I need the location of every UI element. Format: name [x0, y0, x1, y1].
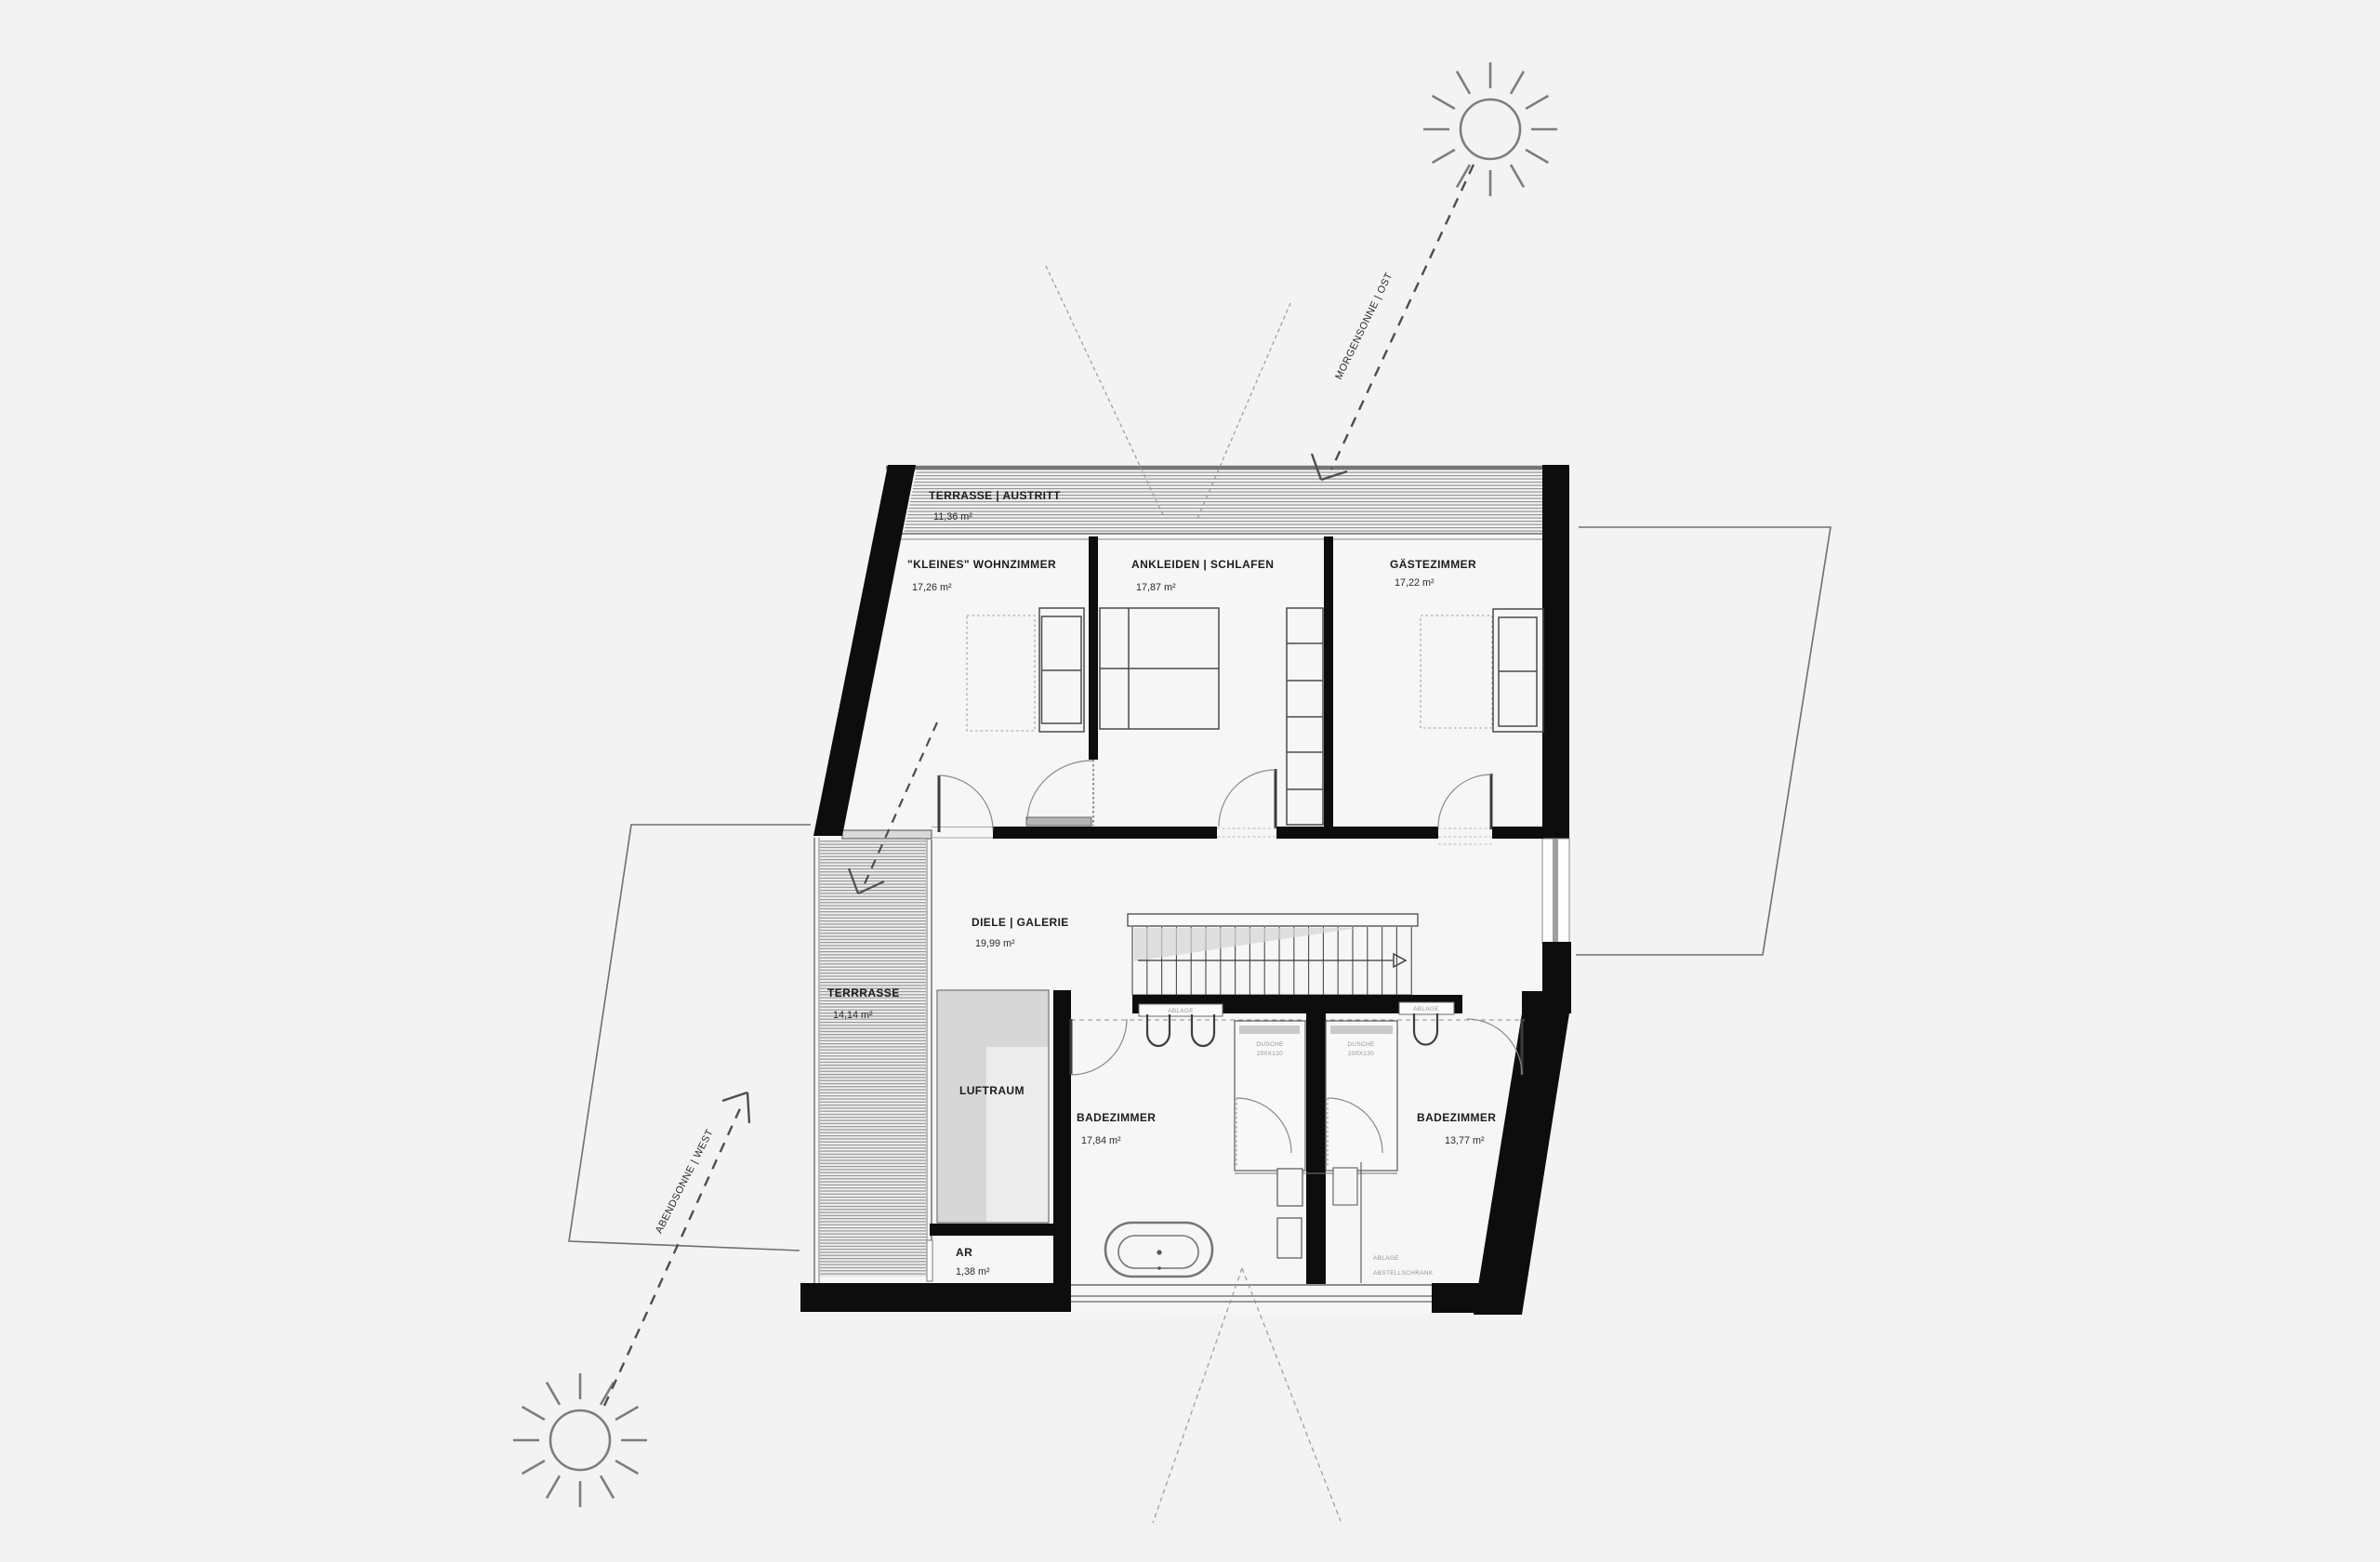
svg-text:ABSTELLSCHRANK: ABSTELLSCHRANK	[1373, 1270, 1434, 1277]
svg-text:"KLEINES" WOHNZIMMER: "KLEINES" WOHNZIMMER	[907, 558, 1056, 571]
svg-text:ABLAGE: ABLAGE	[1168, 1008, 1194, 1014]
svg-text:ANKLEIDEN | SCHLAFEN: ANKLEIDEN | SCHLAFEN	[1131, 558, 1274, 571]
svg-text:13,77 m²: 13,77 m²	[1445, 1135, 1485, 1146]
svg-text:TERRASSE | AUSTRITT: TERRASSE | AUSTRITT	[929, 489, 1061, 502]
svg-text:ABLAGE: ABLAGE	[1373, 1255, 1399, 1262]
svg-text:17,22 m²: 17,22 m²	[1395, 577, 1435, 589]
svg-text:ABLAGE: ABLAGE	[1413, 1006, 1439, 1013]
svg-text:DUSCHE: DUSCHE	[1347, 1041, 1375, 1048]
svg-text:14,14 m²: 14,14 m²	[833, 1010, 873, 1021]
svg-text:19,99 m²: 19,99 m²	[975, 938, 1015, 949]
svg-text:DUSCHE: DUSCHE	[1256, 1041, 1284, 1048]
svg-text:LUFTRAUM: LUFTRAUM	[959, 1084, 1025, 1097]
svg-text:GÄSTEZIMMER: GÄSTEZIMMER	[1390, 557, 1476, 571]
svg-text:17,26 m²: 17,26 m²	[912, 582, 952, 593]
svg-text:17,84 m²: 17,84 m²	[1081, 1135, 1121, 1146]
svg-text:AR: AR	[956, 1246, 972, 1259]
svg-text:TERRRASSE: TERRRASSE	[827, 986, 900, 999]
svg-text:11,36 m²: 11,36 m²	[933, 511, 972, 523]
svg-text:DIELE | GALERIE: DIELE | GALERIE	[972, 916, 1069, 929]
svg-text:17,87 m²: 17,87 m²	[1136, 582, 1176, 593]
svg-text:200X120: 200X120	[1257, 1051, 1283, 1057]
svg-text:BADEZIMMER: BADEZIMMER	[1417, 1111, 1496, 1124]
svg-text:1,38 m²: 1,38 m²	[956, 1266, 990, 1277]
svg-text:BADEZIMMER: BADEZIMMER	[1077, 1111, 1156, 1124]
svg-text:200X120: 200X120	[1348, 1051, 1374, 1057]
